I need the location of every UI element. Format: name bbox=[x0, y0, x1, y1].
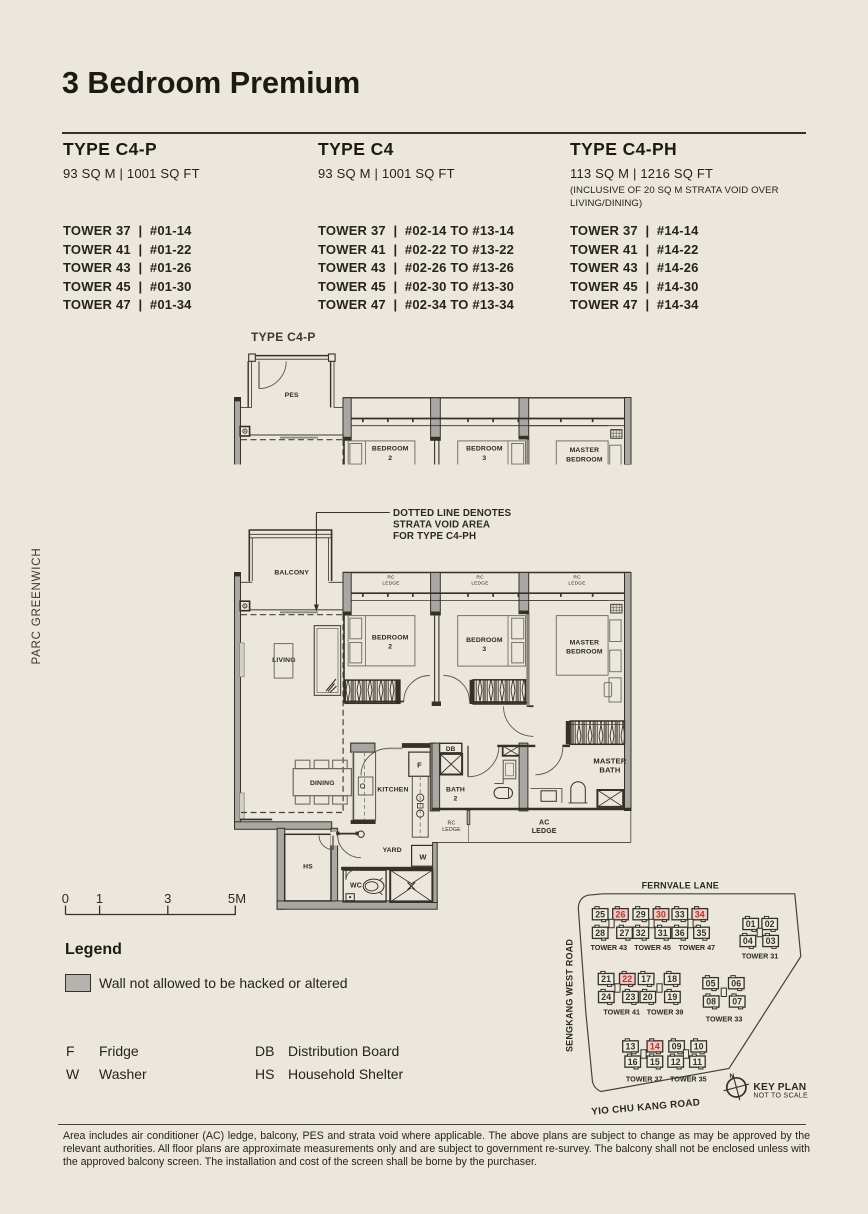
svg-text:FOR TYPE C4-PH: FOR TYPE C4-PH bbox=[393, 531, 476, 542]
svg-text:0: 0 bbox=[62, 891, 69, 906]
svg-text:DINING: DINING bbox=[310, 780, 335, 787]
svg-text:BEDROOM: BEDROOM bbox=[566, 457, 603, 464]
svg-text:TOWER 47: TOWER 47 bbox=[678, 943, 715, 952]
svg-text:BEDROOM: BEDROOM bbox=[566, 649, 603, 656]
svg-text:22: 22 bbox=[622, 974, 632, 984]
svg-text:RC: RC bbox=[387, 575, 395, 581]
svg-text:13: 13 bbox=[626, 1042, 636, 1052]
svg-text:09: 09 bbox=[672, 1042, 682, 1052]
svg-text:03: 03 bbox=[766, 936, 776, 946]
svg-text:MASTER: MASTER bbox=[593, 757, 626, 766]
svg-text:DB: DB bbox=[446, 746, 456, 753]
svg-text:04: 04 bbox=[743, 936, 753, 946]
svg-text:5M: 5M bbox=[228, 891, 246, 906]
svg-text:MASTER: MASTER bbox=[570, 639, 600, 646]
svg-text:WC: WC bbox=[350, 882, 362, 889]
svg-text:LEDGE: LEDGE bbox=[471, 581, 488, 587]
svg-text:29: 29 bbox=[636, 909, 646, 919]
svg-text:PES: PES bbox=[285, 392, 299, 399]
svg-text:BEDROOM: BEDROOM bbox=[372, 446, 409, 453]
svg-text:3: 3 bbox=[482, 455, 486, 462]
svg-text:MASTER: MASTER bbox=[570, 447, 600, 454]
svg-text:18: 18 bbox=[667, 974, 677, 984]
svg-text:SENGKANG WEST ROAD: SENGKANG WEST ROAD bbox=[565, 939, 575, 1052]
svg-text:36: 36 bbox=[675, 928, 685, 938]
svg-text:TOWER 37: TOWER 37 bbox=[626, 1075, 663, 1084]
svg-text:19: 19 bbox=[667, 992, 677, 1002]
svg-text:HS: HS bbox=[303, 864, 313, 871]
svg-text:21: 21 bbox=[601, 974, 611, 984]
svg-text:26: 26 bbox=[616, 909, 626, 919]
svg-text:TOWER 39: TOWER 39 bbox=[647, 1008, 684, 1017]
svg-text:32: 32 bbox=[636, 928, 646, 938]
svg-text:YIO CHU KANG ROAD: YIO CHU KANG ROAD bbox=[591, 1097, 701, 1117]
svg-text:BATH: BATH bbox=[599, 766, 620, 775]
svg-text:FERNVALE LANE: FERNVALE LANE bbox=[642, 880, 719, 890]
svg-text:34: 34 bbox=[695, 909, 705, 919]
svg-text:BEDROOM: BEDROOM bbox=[466, 637, 503, 644]
svg-text:25: 25 bbox=[595, 909, 605, 919]
svg-text:07: 07 bbox=[732, 997, 742, 1007]
svg-text:TOWER 43: TOWER 43 bbox=[590, 943, 627, 952]
svg-text:31: 31 bbox=[658, 928, 668, 938]
svg-text:LEDGE: LEDGE bbox=[532, 828, 557, 835]
svg-text:KEY PLAN: KEY PLAN bbox=[753, 1082, 806, 1093]
svg-text:STRATA VOID AREA: STRATA VOID AREA bbox=[393, 520, 490, 531]
svg-text:23: 23 bbox=[626, 992, 636, 1002]
svg-text:33: 33 bbox=[675, 909, 685, 919]
svg-text:KITCHEN: KITCHEN bbox=[377, 786, 408, 793]
svg-text:12: 12 bbox=[671, 1057, 681, 1067]
svg-text:08: 08 bbox=[706, 997, 716, 1007]
svg-text:30: 30 bbox=[656, 909, 666, 919]
svg-text:TOWER 33: TOWER 33 bbox=[706, 1015, 743, 1024]
svg-text:15: 15 bbox=[650, 1057, 660, 1067]
svg-text:N: N bbox=[729, 1073, 734, 1080]
svg-text:17: 17 bbox=[641, 974, 651, 984]
svg-text:3: 3 bbox=[482, 646, 486, 653]
svg-text:W: W bbox=[419, 852, 427, 861]
svg-text:14: 14 bbox=[650, 1042, 660, 1052]
svg-text:06: 06 bbox=[731, 978, 741, 988]
svg-text:LEDGE: LEDGE bbox=[382, 581, 399, 587]
svg-text:2: 2 bbox=[454, 796, 458, 803]
svg-text:LEDGE: LEDGE bbox=[568, 581, 585, 587]
svg-text:TOWER 45: TOWER 45 bbox=[634, 943, 671, 952]
svg-text:AC: AC bbox=[539, 820, 549, 827]
svg-text:2: 2 bbox=[388, 455, 392, 462]
svg-text:20: 20 bbox=[643, 992, 653, 1002]
svg-text:02: 02 bbox=[765, 919, 775, 929]
svg-text:3: 3 bbox=[164, 891, 171, 906]
svg-text:28: 28 bbox=[595, 928, 605, 938]
svg-text:10: 10 bbox=[694, 1042, 704, 1052]
svg-text:01: 01 bbox=[746, 919, 756, 929]
svg-text:LIVING: LIVING bbox=[272, 657, 296, 664]
svg-text:TOWER 35: TOWER 35 bbox=[670, 1075, 707, 1084]
svg-text:BEDROOM: BEDROOM bbox=[372, 635, 409, 642]
svg-text:BATH: BATH bbox=[446, 787, 465, 794]
svg-text:YARD: YARD bbox=[383, 847, 402, 854]
svg-text:RC: RC bbox=[448, 821, 456, 827]
svg-text:2: 2 bbox=[388, 644, 392, 651]
svg-text:05: 05 bbox=[706, 978, 716, 988]
svg-text:BALCONY: BALCONY bbox=[274, 570, 309, 577]
svg-text:1: 1 bbox=[96, 891, 103, 906]
svg-text:TOWER 31: TOWER 31 bbox=[742, 952, 779, 961]
svg-text:16: 16 bbox=[628, 1057, 638, 1067]
svg-text:TOWER 41: TOWER 41 bbox=[603, 1008, 640, 1017]
svg-text:RC: RC bbox=[476, 575, 484, 581]
svg-text:27: 27 bbox=[620, 928, 630, 938]
svg-text:BEDROOM: BEDROOM bbox=[466, 446, 503, 453]
svg-text:LEDGE: LEDGE bbox=[442, 827, 461, 833]
svg-text:11: 11 bbox=[693, 1057, 703, 1067]
svg-text:35: 35 bbox=[697, 928, 707, 938]
svg-text:DOTTED LINE DENOTES: DOTTED LINE DENOTES bbox=[393, 508, 512, 519]
svg-text:NOT TO SCALE: NOT TO SCALE bbox=[753, 1093, 808, 1100]
svg-text:24: 24 bbox=[601, 992, 611, 1002]
svg-text:RC: RC bbox=[573, 575, 581, 581]
svg-text:F: F bbox=[417, 760, 422, 769]
